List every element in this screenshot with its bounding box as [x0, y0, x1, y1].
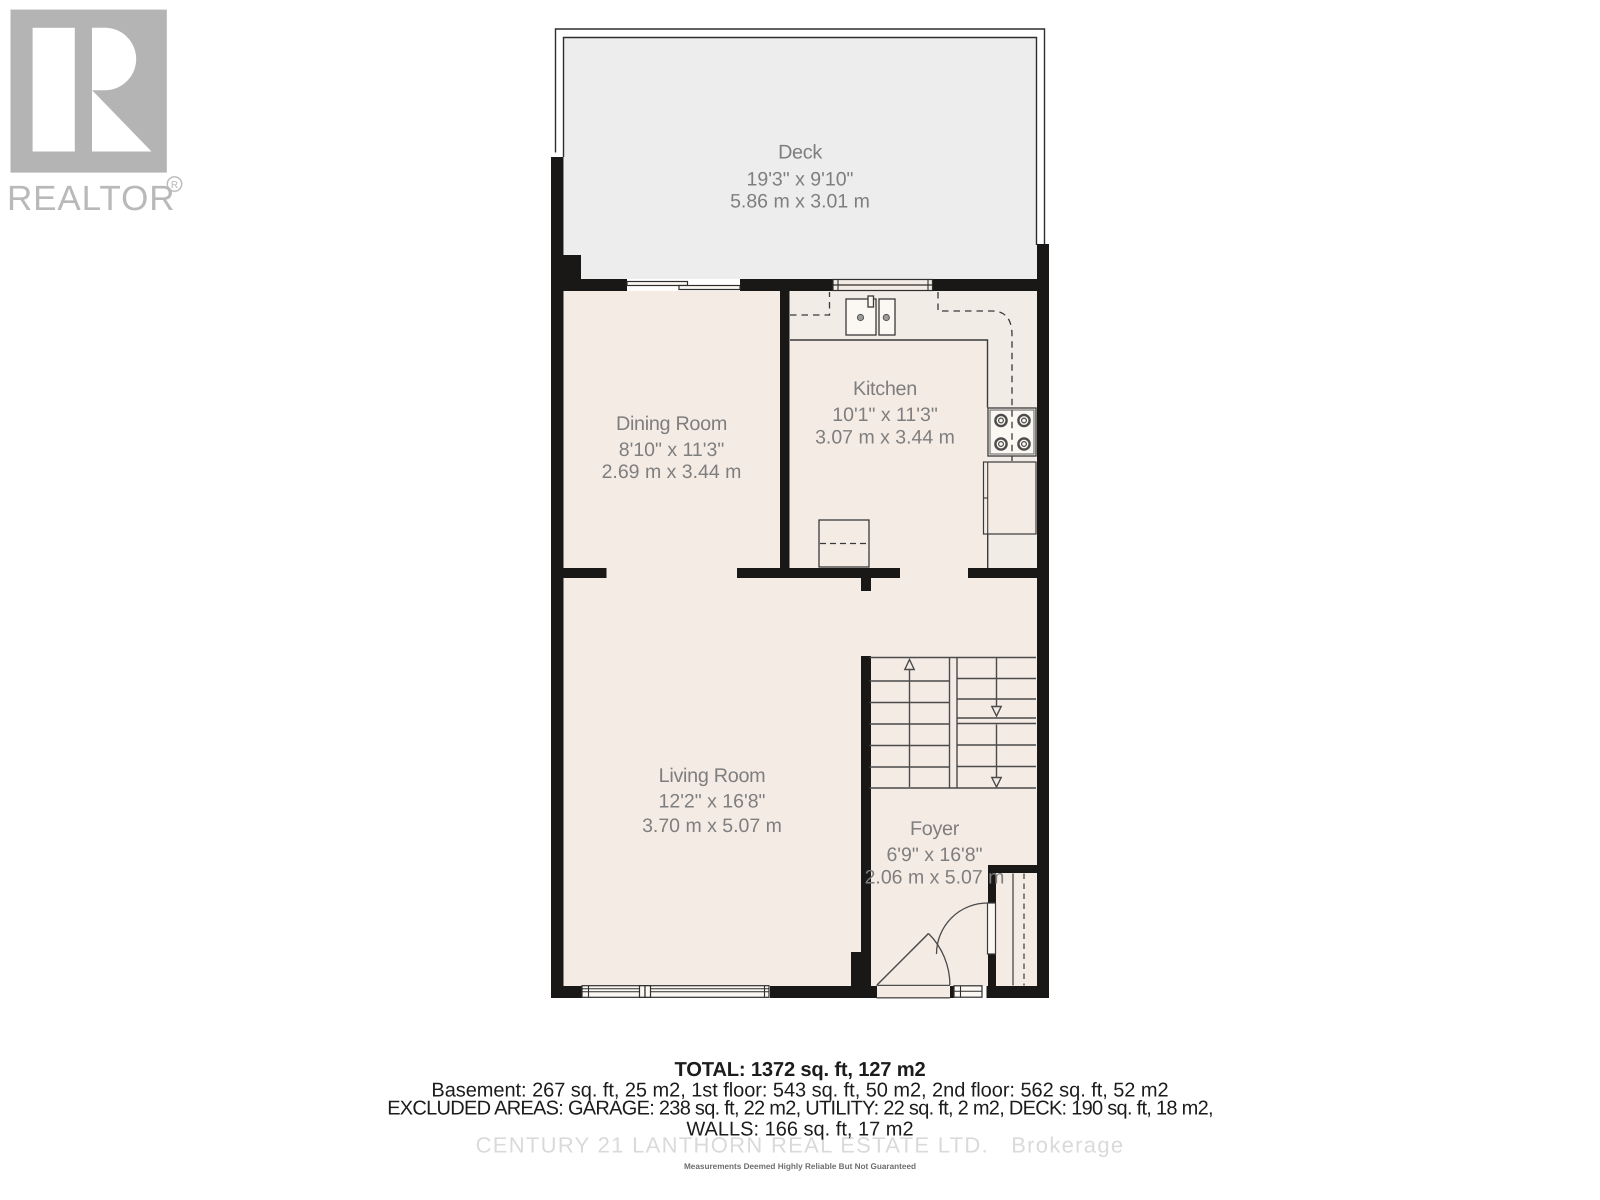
svg-text:EXCLUDED AREAS: GARAGE: 238 sq: EXCLUDED AREAS: GARAGE: 238 sq. ft, 22 m…	[387, 1098, 1213, 1120]
svg-text:19'3" x 9'10": 19'3" x 9'10"	[747, 169, 854, 191]
svg-text:3.07 m x 3.44 m: 3.07 m x 3.44 m	[815, 427, 955, 449]
svg-text:Living Room: Living Room	[659, 765, 766, 787]
svg-text:Deck: Deck	[778, 142, 822, 164]
svg-text:R: R	[171, 180, 178, 191]
svg-text:REALTOR: REALTOR	[7, 179, 175, 218]
svg-text:8'10" x 11'3": 8'10" x 11'3"	[619, 439, 725, 461]
svg-text:Foyer: Foyer	[910, 818, 960, 840]
svg-text:6'9" x 16'8": 6'9" x 16'8"	[886, 844, 982, 866]
svg-text:5.86 m x 3.01 m: 5.86 m x 3.01 m	[730, 191, 870, 213]
svg-text:2.69 m x 3.44 m: 2.69 m x 3.44 m	[602, 461, 742, 483]
svg-text:2.06 m x 5.07 m: 2.06 m x 5.07 m	[865, 867, 1005, 889]
svg-text:Dining Room: Dining Room	[616, 413, 727, 435]
svg-text:Kitchen: Kitchen	[853, 378, 917, 400]
svg-text:12'2" x 16'8": 12'2" x 16'8"	[659, 791, 766, 813]
svg-text:3.70 m x 5.07 m: 3.70 m x 5.07 m	[642, 815, 782, 837]
svg-text:TOTAL: 1372 sq. ft, 127 m2: TOTAL: 1372 sq. ft, 127 m2	[675, 1059, 926, 1081]
svg-text:WALLS: 166 sq. ft, 17 m2: WALLS: 166 sq. ft, 17 m2	[686, 1119, 913, 1141]
svg-text:10'1" x 11'3": 10'1" x 11'3"	[832, 404, 938, 426]
svg-text:Measurements Deemed Highly Rel: Measurements Deemed Highly Reliable But …	[684, 1162, 916, 1171]
